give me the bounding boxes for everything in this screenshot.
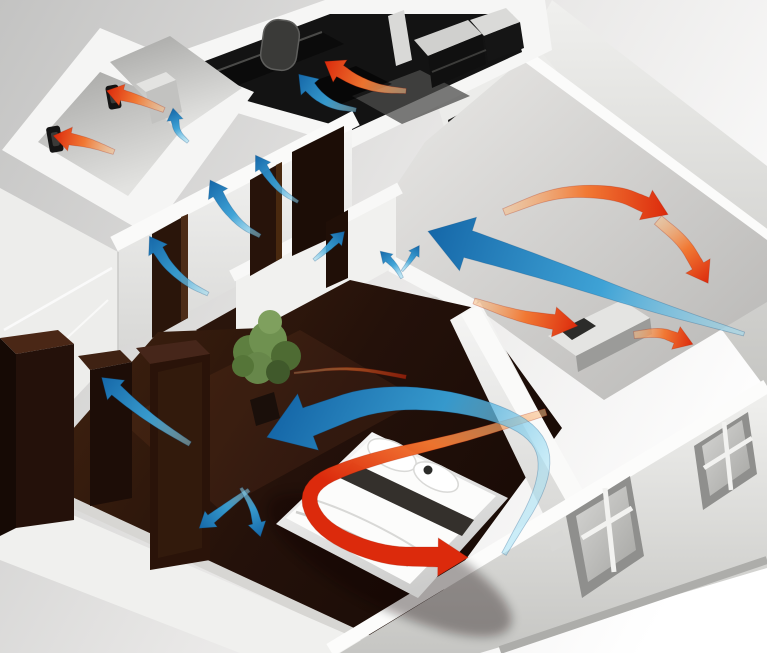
plant-foliage xyxy=(266,360,290,384)
plant-foliage xyxy=(258,310,282,334)
plant-foliage xyxy=(232,355,254,377)
apartment-ventilation-illustration xyxy=(0,0,767,653)
wardrobe-box-panel xyxy=(158,362,202,558)
door-2-panel xyxy=(276,162,282,261)
pillow-notch xyxy=(424,466,433,475)
door-1-panel xyxy=(181,214,188,321)
apartment-3d-render xyxy=(0,0,767,653)
wardrobe-box-side xyxy=(0,338,16,536)
wardrobe-box-front xyxy=(16,344,74,528)
